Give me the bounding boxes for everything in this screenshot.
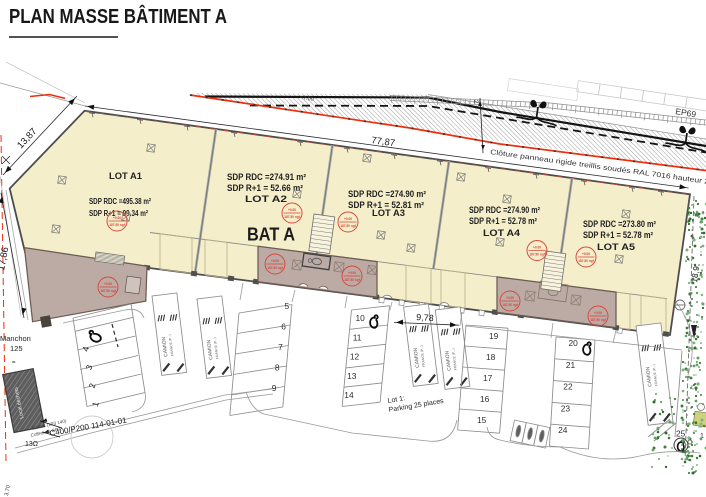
svg-text:+0.00: +0.00	[104, 282, 112, 286]
svg-text:187.50 ngf: 187.50 ngf	[340, 224, 357, 228]
svg-text:8: 8	[275, 363, 280, 373]
svg-text:13: 13	[347, 371, 357, 381]
svg-text:+0.00: +0.00	[344, 217, 352, 221]
svg-text:187.50 ngf: 187.50 ngf	[578, 259, 595, 263]
svg-text:17: 17	[483, 373, 493, 383]
svg-text:SDP RDC =274.90 m²: SDP RDC =274.90 m²	[469, 205, 540, 215]
svg-text:187.50 ngf: 187.50 ngf	[100, 289, 117, 293]
svg-text:187.50 ngf: 187.50 ngf	[344, 278, 361, 282]
svg-text:187.50 ngf: 187.50 ngf	[109, 223, 126, 227]
svg-text:LOT A5: LOT A5	[597, 242, 635, 252]
svg-text:+0.00: +0.00	[271, 259, 279, 263]
svg-text:187.50 ngf: 187.50 ngf	[502, 303, 519, 307]
svg-text:18: 18	[486, 352, 496, 362]
svg-text:24: 24	[558, 425, 568, 435]
svg-text:=: =	[12, 360, 16, 366]
svg-text:SDP RDC =495.38 m²: SDP RDC =495.38 m²	[89, 196, 151, 206]
svg-text:10: 10	[356, 313, 366, 323]
svg-text:25: 25	[676, 429, 686, 439]
svg-text:+0.00: +0.00	[506, 296, 514, 300]
svg-text:PLAN MASSE BÂTIMENT A: PLAN MASSE BÂTIMENT A	[9, 4, 227, 28]
svg-text:187.50 ngf: 187.50 ngf	[267, 266, 284, 270]
svg-text:LOT A1: LOT A1	[109, 171, 142, 181]
svg-text:+0.00: +0.00	[288, 208, 296, 212]
svg-text:12: 12	[350, 352, 360, 362]
svg-text:13Ω: 13Ω	[25, 441, 38, 448]
svg-text:20: 20	[569, 338, 579, 348]
svg-text:LOT A2: LOT A2	[245, 194, 287, 204]
svg-text:LOT A3: LOT A3	[372, 208, 405, 218]
svg-text:11: 11	[353, 332, 362, 342]
svg-text:21: 21	[566, 360, 576, 370]
svg-text:19: 19	[489, 331, 499, 341]
svg-text:22: 22	[563, 382, 573, 392]
svg-text:SDP RDC =274.91 m²: SDP RDC =274.91 m²	[227, 172, 306, 182]
svg-text:14: 14	[344, 390, 354, 400]
svg-text:SDP RDC =274.90 m²: SDP RDC =274.90 m²	[348, 189, 426, 199]
svg-text:15: 15	[477, 415, 487, 425]
svg-text:SDP R+1 = 52.66 m²: SDP R+1 = 52.66 m²	[227, 183, 303, 193]
svg-text:+0.00: +0.00	[348, 271, 356, 275]
svg-text:9: 9	[272, 383, 277, 393]
svg-text:5: 5	[285, 301, 290, 311]
svg-text:+0.00: +0.00	[533, 246, 541, 250]
svg-text:BAT A: BAT A	[247, 224, 295, 245]
svg-text:187.50 ngf: 187.50 ngf	[284, 215, 301, 219]
svg-text:187.50 ngf: 187.50 ngf	[590, 318, 607, 322]
svg-text:SDP RDC =273.80 m²: SDP RDC =273.80 m²	[583, 219, 656, 229]
svg-text:7: 7	[278, 342, 283, 352]
svg-text:187.50 ngf: 187.50 ngf	[529, 253, 546, 257]
svg-text:SDP R+1 = 52.78 m²: SDP R+1 = 52.78 m²	[583, 230, 653, 240]
svg-text:LOT A4: LOT A4	[483, 228, 520, 238]
svg-text:16: 16	[480, 394, 490, 404]
svg-text:+0.00: +0.00	[594, 311, 602, 315]
svg-text:+0.00: +0.00	[113, 216, 121, 220]
svg-text:125: 125	[10, 344, 23, 353]
svg-text:+0.00: +0.00	[582, 252, 590, 256]
svg-text:Manchon: Manchon	[0, 334, 31, 343]
svg-text:9,78: 9,78	[416, 312, 434, 323]
svg-text:6: 6	[281, 322, 286, 332]
svg-text:SDP R+1 = 52.78 m²: SDP R+1 = 52.78 m²	[469, 216, 537, 226]
svg-text:23: 23	[561, 403, 571, 413]
